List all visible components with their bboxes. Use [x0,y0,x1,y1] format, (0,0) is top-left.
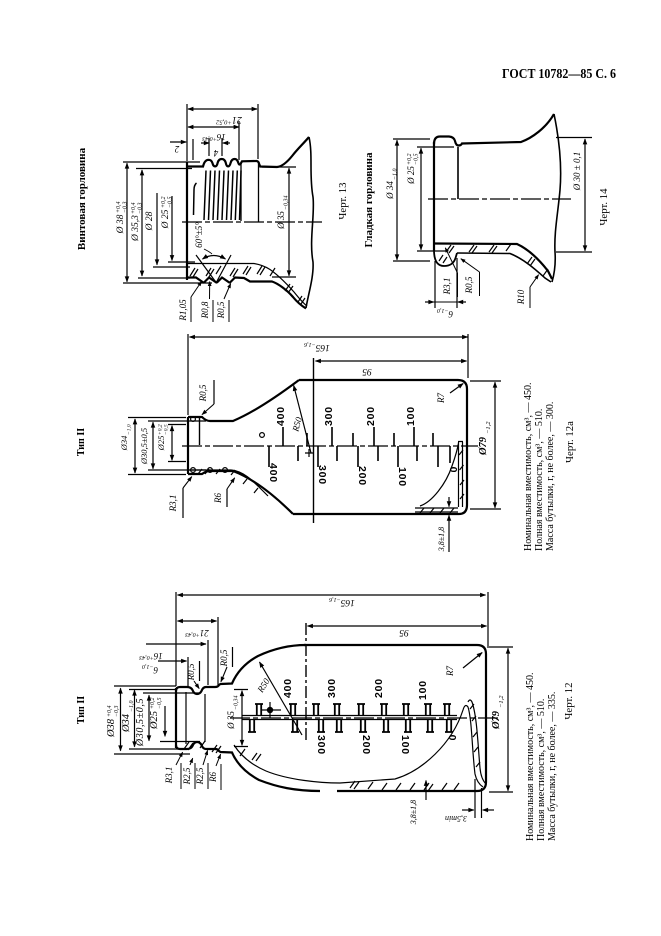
svg-text:6−1,0: 6−1,0 [142,663,158,675]
svg-text:16+0,43: 16+0,43 [139,651,163,661]
svg-text:Ø 35: Ø 35 [276,211,286,230]
svg-text:R1,05: R1,05 [178,299,188,322]
svg-text:200: 200 [356,466,368,486]
svg-text:Гладкая горловина: Гладкая горловина [363,152,375,247]
svg-text:R0,5: R0,5 [198,384,208,402]
svg-text:−0,5: −0,5 [414,153,420,165]
svg-text:R0,5: R0,5 [219,649,229,667]
svg-text:60°±5°: 60°±5° [194,222,204,248]
svg-text:R2,5: R2,5 [195,767,205,785]
svg-text:6−1,0: 6−1,0 [437,307,453,319]
svg-text:Номинальная вместимость, см³,: Номинальная вместимость, см³, — 450. [523,383,534,551]
svg-text:200: 200 [373,678,385,698]
svg-text:4: 4 [213,148,218,158]
svg-text:Ø25: Ø25 [149,711,160,730]
svg-text:100: 100 [417,680,429,700]
svg-text:Масса бутылки, г, не более, —: Масса бутылки, г, не более, — 300. [545,402,556,551]
svg-text:R7: R7 [436,393,446,404]
svg-text:Ø79: Ø79 [491,710,502,730]
svg-text:Ø79: Ø79 [478,436,489,456]
svg-text:−1,0: −1,0 [393,168,399,180]
svg-text:R50: R50 [290,415,304,433]
svg-text:100: 100 [405,406,417,426]
svg-text:3,8±1,8: 3,8±1,8 [409,800,418,825]
svg-text:Ø 34: Ø 34 [385,181,395,200]
svg-text:100: 100 [396,467,408,487]
svg-text:300: 300 [323,406,335,426]
svg-text:16+0,43: 16+0,43 [202,132,226,142]
svg-text:Ø 30 ± 0,1: Ø 30 ± 0,1 [572,152,582,191]
svg-text:Черт. 14: Черт. 14 [598,188,610,226]
svg-text:−0,5: −0,5 [164,424,170,435]
svg-text:3,5min: 3,5min [445,814,468,823]
svg-text:95: 95 [399,627,409,637]
svg-text:R0,5: R0,5 [464,276,474,294]
svg-text:165−1,6: 165−1,6 [329,596,355,607]
svg-text:+0,2: +0,2 [150,697,156,709]
svg-text:100: 100 [399,735,411,755]
svg-text:Номинальная вместимость, см³,: Номинальная вместимость, см³, — 450. [525,673,536,841]
svg-text:Ø 38: Ø 38 [116,214,126,234]
svg-text:Ø38: Ø38 [106,718,117,738]
svg-text:R0,5: R0,5 [186,663,196,681]
svg-text:0: 0 [446,735,458,742]
svg-text:Ø34: Ø34 [121,713,132,733]
svg-text:Винтовая горловина: Винтовая горловина [76,147,88,250]
svg-text:Ø25: Ø25 [156,436,166,452]
svg-text:−1,0: −1,0 [127,424,133,435]
svg-text:165−1,6: 165−1,6 [304,341,330,352]
svg-text:Ø30,5±0,5: Ø30,5±0,5 [135,698,146,747]
svg-text:21+0,52: 21+0,52 [215,114,242,126]
svg-text:400: 400 [275,406,287,426]
svg-text:300: 300 [315,735,327,755]
svg-text:+0,4: +0,4 [106,705,113,717]
svg-text:R3,1: R3,1 [168,495,178,513]
svg-text:Масса бутылки, г, не более, —: Масса бутылки, г, не более, — 335. [547,692,558,841]
svg-text:Ø30,5±0,5: Ø30,5±0,5 [139,428,149,465]
svg-text:Черт. 12а: Черт. 12а [564,421,576,463]
svg-text:Полная вместимость, см³, — 510: Полная вместимость, см³, — 510. [536,699,547,841]
svg-text:R3,1: R3,1 [442,278,452,296]
svg-text:95: 95 [362,366,372,376]
svg-text:2: 2 [174,144,179,154]
svg-text:+0,4: +0,4 [130,202,137,214]
svg-text:R3,1: R3,1 [164,767,174,785]
svg-text:400: 400 [267,463,279,483]
svg-text:Ø34: Ø34 [119,435,129,451]
svg-text:Ø 35: Ø 35 [226,711,236,730]
svg-text:ГОСТ 10782—85 С. 6: ГОСТ 10782—85 С. 6 [502,66,616,81]
svg-text:Ø 28: Ø 28 [145,211,155,231]
svg-text:400: 400 [282,678,294,698]
svg-text:R2,5: R2,5 [182,767,192,785]
svg-text:R7: R7 [445,666,455,677]
svg-text:Черт. 13: Черт. 13 [337,182,349,219]
svg-text:−0,34: −0,34 [283,195,290,210]
svg-text:Тип II: Тип II [76,696,87,724]
svg-text:R6: R6 [213,493,223,504]
svg-text:−0,3: −0,3 [123,201,129,213]
svg-text:−0,34: −0,34 [233,695,240,710]
svg-text:300: 300 [326,678,338,698]
svg-text:−0,3: −0,3 [138,202,144,214]
svg-text:200: 200 [360,735,372,755]
svg-text:Ø 25: Ø 25 [406,166,416,185]
svg-text:R10: R10 [516,289,526,305]
svg-text:200: 200 [365,406,377,426]
svg-text:R6: R6 [208,772,218,783]
svg-text:Ø 25: Ø 25 [161,209,171,229]
svg-text:Черт. 12: Черт. 12 [563,682,575,719]
svg-text:3,8±1,8: 3,8±1,8 [437,527,446,552]
svg-text:+0,2: +0,2 [161,196,167,208]
svg-text:−1,2: −1,2 [498,695,505,708]
svg-text:−0,5: −0,5 [168,196,174,208]
svg-text:+0,2: +0,2 [407,153,413,165]
svg-text:R0,8: R0,8 [200,301,210,319]
svg-text:−0,3: −0,3 [114,705,120,717]
svg-text:300: 300 [316,465,328,485]
svg-text:R0,5: R0,5 [216,301,226,319]
svg-text:0: 0 [447,467,459,474]
svg-text:Полная вместимость, см³, — 510: Полная вместимость, см³, — 510. [534,409,545,551]
svg-text:−1,2: −1,2 [485,421,492,434]
svg-text:Тип II: Тип II [76,428,87,456]
svg-text:+0,4: +0,4 [115,201,122,213]
svg-text:21+0,43: 21+0,43 [185,628,209,638]
svg-text:−0,5: −0,5 [157,697,163,709]
svg-text:Ø 35,3: Ø 35,3 [131,215,141,242]
